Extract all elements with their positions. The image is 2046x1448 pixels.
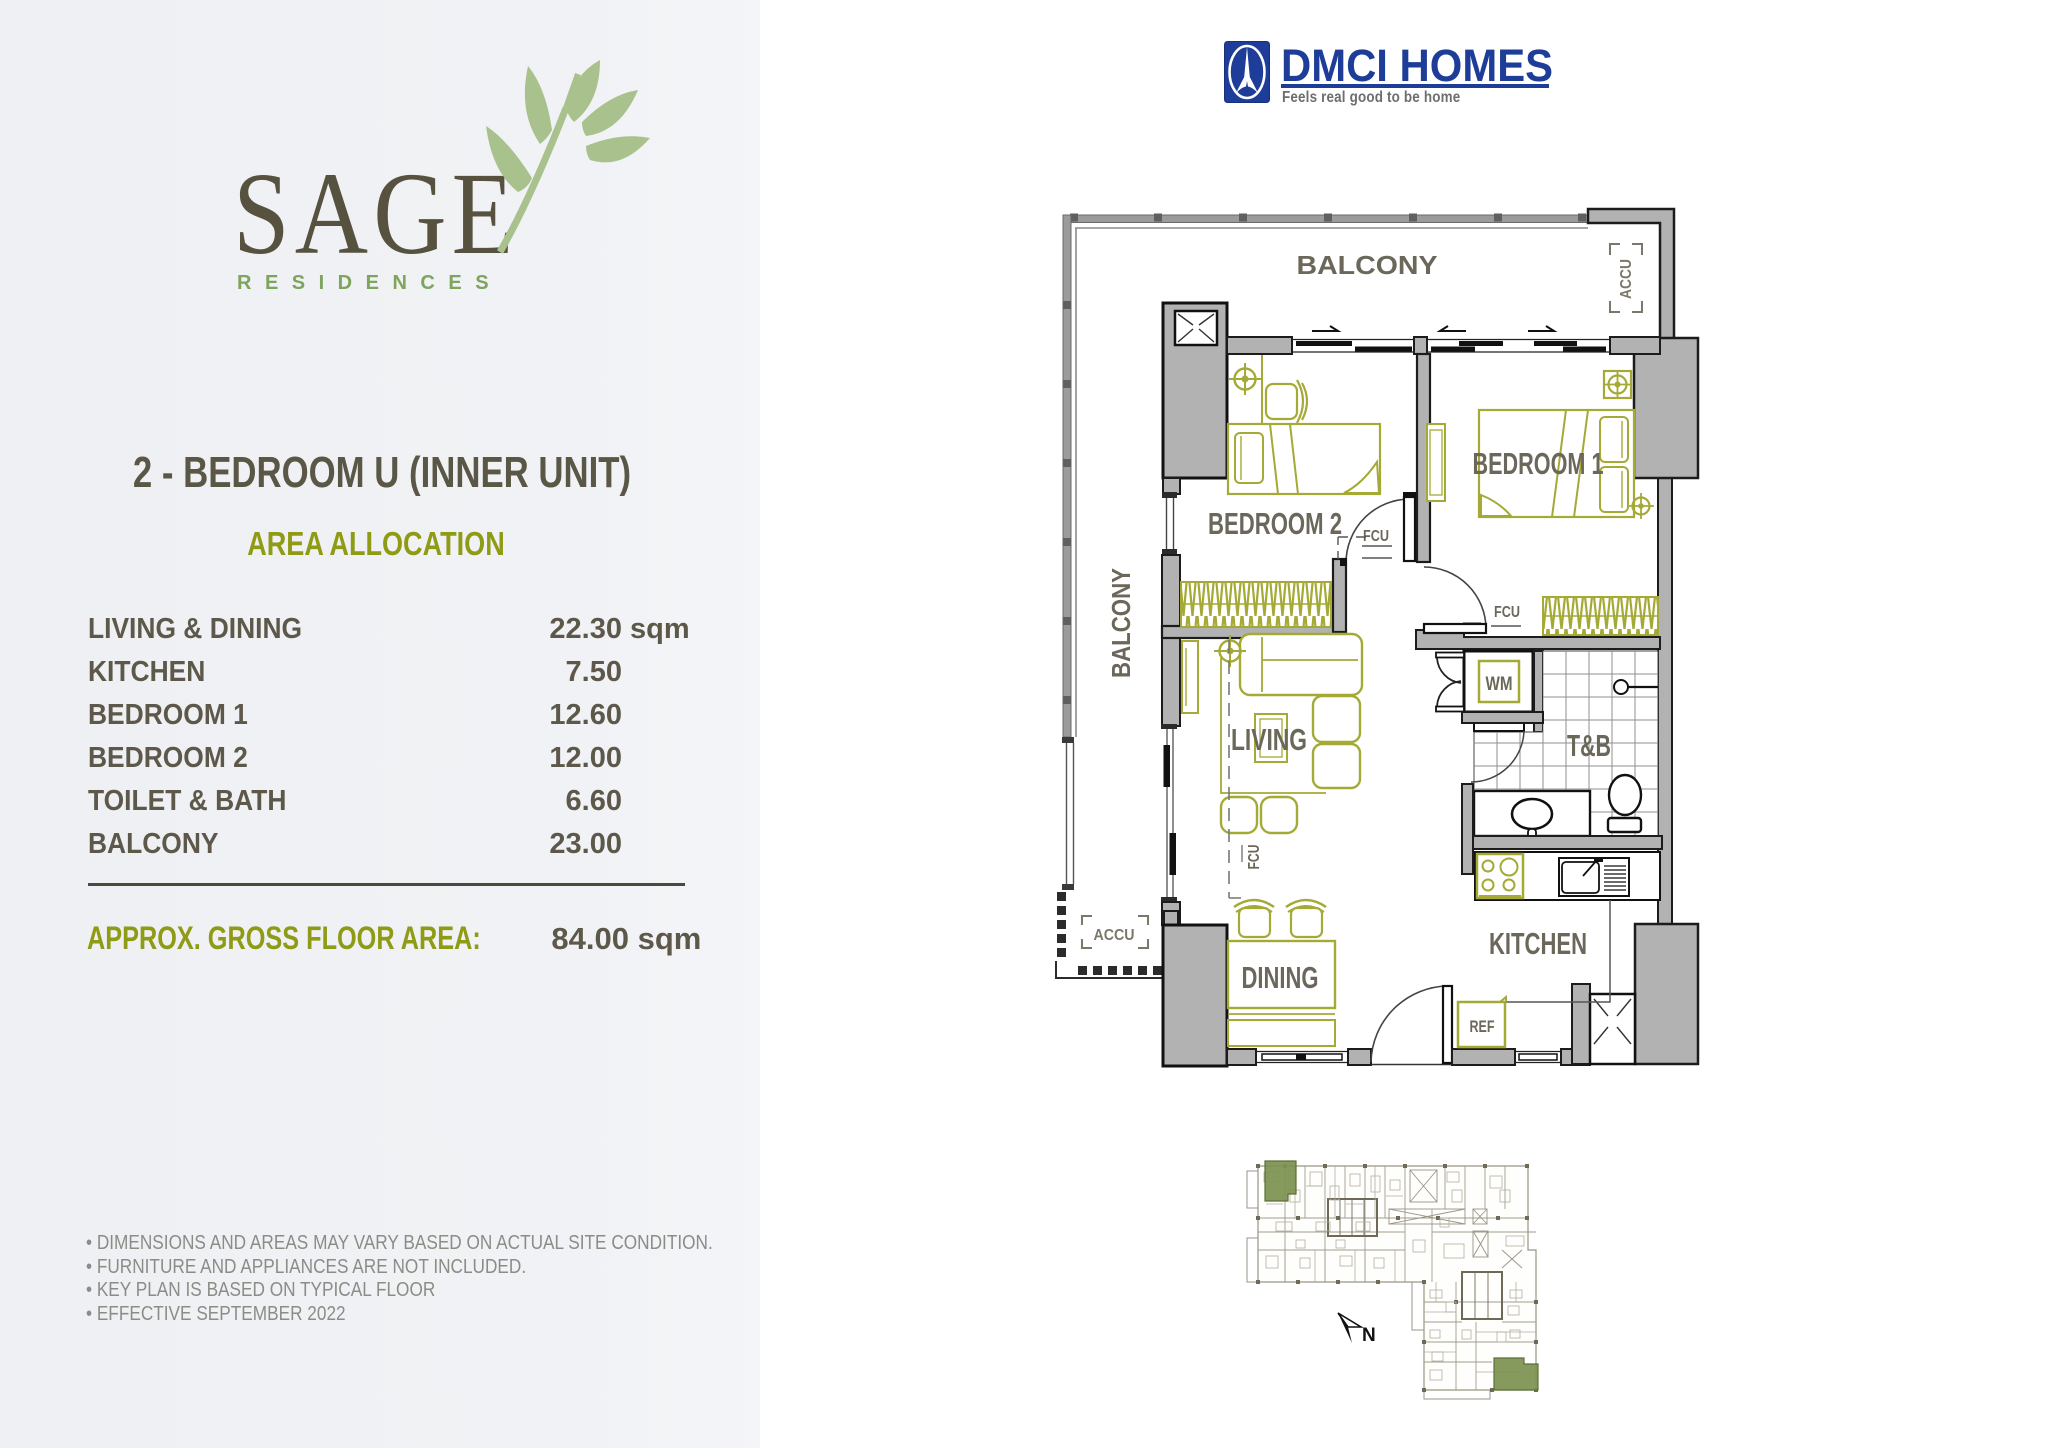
- svg-text:FCU: FCU: [1363, 528, 1389, 545]
- svg-text:FCU: FCU: [1494, 604, 1520, 621]
- svg-text:WM: WM: [1486, 674, 1513, 695]
- svg-text:ACCU: ACCU: [1618, 259, 1635, 299]
- svg-text:ACCU: ACCU: [1094, 927, 1135, 944]
- svg-text:T&B: T&B: [1567, 728, 1611, 763]
- svg-text:BEDROOM 1: BEDROOM 1: [1473, 446, 1604, 481]
- svg-text:N: N: [1362, 1325, 1376, 1346]
- svg-text:KITCHEN: KITCHEN: [1489, 926, 1587, 961]
- svg-text:REF: REF: [1470, 1017, 1495, 1036]
- svg-text:BEDROOM 2: BEDROOM 2: [1208, 506, 1342, 541]
- svg-text:FCU: FCU: [1246, 845, 1263, 870]
- svg-text:BALCONY: BALCONY: [1106, 568, 1136, 678]
- svg-text:LIVING: LIVING: [1231, 722, 1307, 757]
- svg-text:BALCONY: BALCONY: [1297, 250, 1438, 280]
- svg-text:DINING: DINING: [1242, 960, 1319, 995]
